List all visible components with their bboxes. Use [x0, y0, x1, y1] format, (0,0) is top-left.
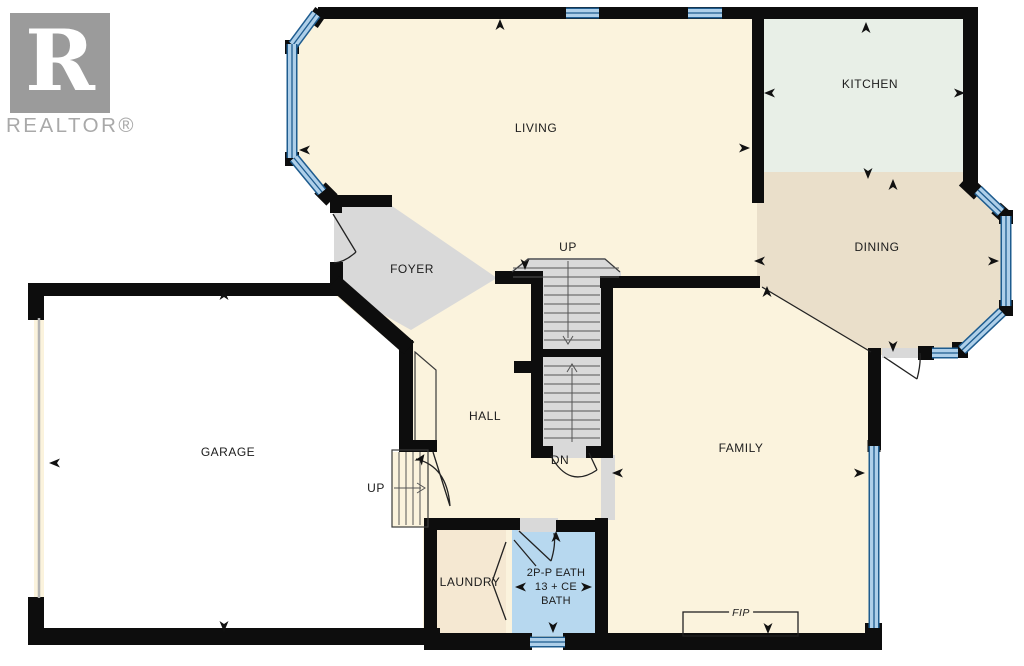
room-label-hall: HALL	[469, 409, 501, 423]
stair-label-dn: DN	[551, 453, 569, 467]
stair-label-up: UP	[559, 240, 577, 254]
fireplace-label: FIP	[729, 607, 753, 619]
kitchen-floor	[757, 13, 972, 172]
realtor-logo: R	[10, 13, 110, 113]
floorplan-drawing	[0, 0, 1024, 666]
realtor-logo-letter: R	[25, 19, 95, 103]
room-label-living: LIVING	[515, 121, 557, 135]
realtor-logo-text: REALTOR®	[6, 114, 136, 138]
room-label-family: FAMILY	[719, 441, 764, 455]
room-label-kitchen: KITCHEN	[842, 77, 898, 91]
floorplan-page: LIVING KITCHEN DINING FOYER HALL FAMILY …	[0, 0, 1024, 666]
hall-family-opening	[601, 455, 615, 520]
garage-floor	[44, 296, 423, 632]
room-label-laundry: LAUNDRY	[440, 575, 501, 589]
bath-label-line1: 2P-P EATH	[527, 566, 586, 580]
room-label-dining: DINING	[855, 240, 900, 254]
room-label-foyer: FOYER	[390, 262, 434, 276]
room-label-garage: GARAGE	[201, 445, 255, 459]
bath-label-line2: 13 + CE	[527, 580, 586, 594]
bath-label-line3: BATH	[527, 594, 586, 608]
stair-label-up-garage: UP	[367, 481, 385, 495]
bath-door-opening	[518, 518, 558, 532]
room-label-bath: 2P-P EATH 13 + CE BATH	[527, 566, 586, 608]
stair-upper-shaft	[543, 284, 601, 349]
dining-door-opening	[882, 348, 918, 358]
